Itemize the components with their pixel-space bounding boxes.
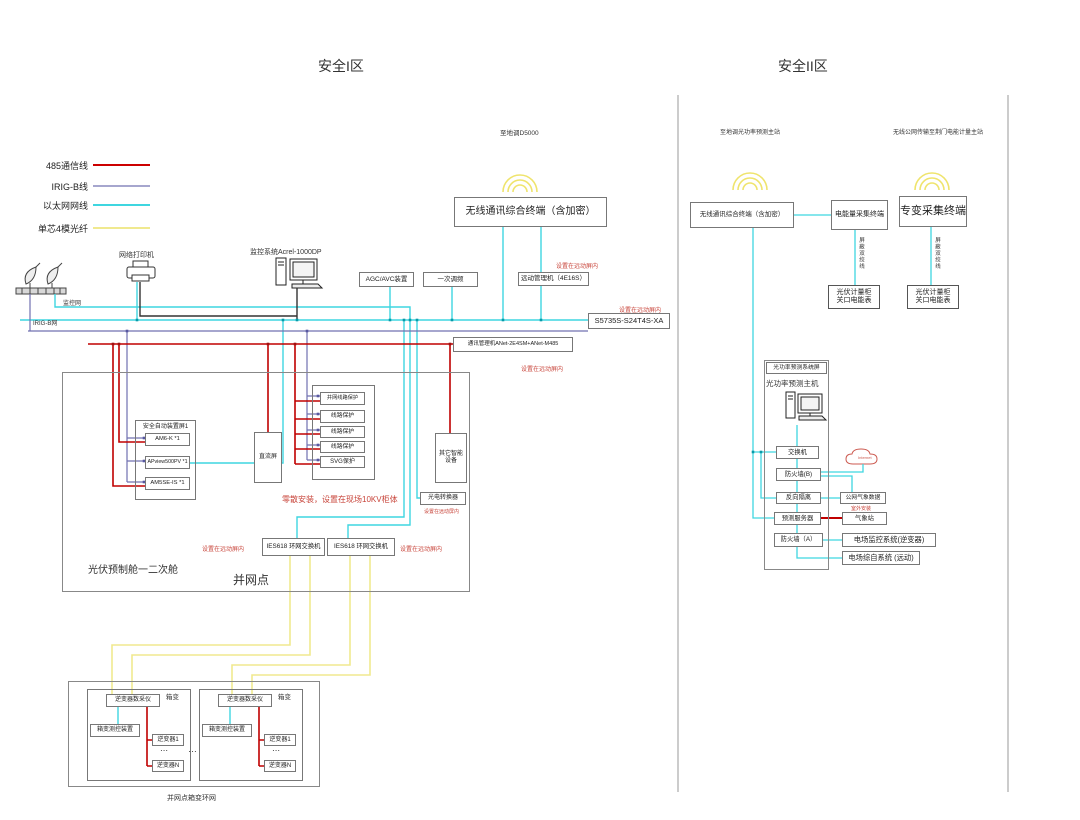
inverter-first-box-1: 逆变器1 — [152, 734, 184, 746]
transformer-controller-box-1: 箱变测控装置 — [90, 724, 140, 737]
am5se-box: AM5SE-IS *1 — [145, 477, 190, 490]
inverter-last-box-1: 逆变器N — [152, 760, 184, 772]
wifi-icon-zone1 — [503, 175, 537, 192]
protection-box-3: 线路保护 — [320, 426, 365, 438]
wifi-icon-zone2-right — [915, 173, 949, 190]
note-remote-2: 设置在远动屏内 — [619, 305, 661, 314]
svg-protection-box: SVG保护 — [320, 456, 365, 468]
prediction-host-label: 光功率预测主机 — [766, 378, 819, 389]
photo-converter-box: 光电转换器 — [420, 492, 466, 505]
zone1-title: 安全I区 — [318, 56, 364, 76]
protection-box-1: 并网线路保护 — [320, 392, 365, 405]
irig-net-label: IRIG-B网 — [33, 318, 57, 327]
protection-box-4: 线路保护 — [320, 441, 365, 453]
scada-label: 监控系统Acrel-1000DP — [250, 247, 322, 257]
dispatch-label: 至地调D5000 — [500, 127, 539, 137]
legend-label-irigb: IRIG-B线 — [8, 180, 88, 193]
core-switch-box: S5735S-S24T4S-XA — [588, 313, 670, 329]
reverse-isolation-box: 反向隔离 — [776, 492, 821, 504]
inverter-first-box-2: 逆变器1 — [264, 734, 296, 746]
twisted-pair-label-2: 屏蔽双绞线 — [933, 237, 941, 270]
agc-avc-box: AGC/AVC装置 — [359, 272, 414, 287]
monitor-net-label: 监控网 — [63, 298, 81, 307]
satellite-antenna-icon — [16, 263, 66, 294]
comm-manager-box: 通讯管理机ANet-2E4SM+ANet-M485 — [453, 337, 573, 352]
note-remote-3: 设置在远动屏内 — [521, 364, 563, 373]
internet-label: Internet — [858, 455, 872, 460]
outdoor-note: 室外安装 — [851, 505, 871, 512]
transformer-label-2: 箱变 — [278, 691, 291, 701]
wireless-terminal-zone2: 无线通讯综合终端（含加密） — [690, 202, 794, 228]
diagram-page: 安全I区 安全II区 485通信线 IRIG-B线 以太网网线 单芯4模光纤 至… — [0, 0, 1080, 820]
meter-cabinet-box-2: 光伏计量柜 关口电能表 — [907, 285, 959, 309]
transformer-label-1: 箱变 — [166, 691, 179, 701]
meter-cabinet-2-line2: 关口电能表 — [916, 297, 951, 305]
zone2-right-top-label: 无线公网传输至荆门电能计量主站 — [893, 127, 983, 136]
apview-box: APview500PV *1 — [145, 456, 190, 469]
twisted-pair-label-1: 屏蔽双绞线 — [857, 237, 865, 270]
legend-label-ethernet: 以太网网线 — [8, 199, 88, 212]
protection-box-2: 线路保护 — [320, 410, 365, 423]
scatter-note: 零散安装，设置在现场10KV柜体 — [282, 494, 398, 505]
inverter-dots-1: ⋯ — [160, 746, 168, 755]
am6k-box: AM6-K *1 — [145, 433, 190, 446]
inverter-daq-box-2: 逆变器数采仪 — [218, 694, 272, 707]
primary-freq-box: 一次调频 — [423, 272, 478, 287]
transformer-ring-label: 并网点箱变环网 — [167, 793, 216, 803]
cabin-label: 光伏预制舱一二次舱 — [88, 561, 178, 576]
meter-cabinet-1-line2: 关口电能表 — [837, 297, 872, 305]
prediction-server-box: 预测服务器 — [774, 512, 821, 525]
meter-cabinet-1-line1: 光伏计量柜 — [837, 289, 872, 297]
zone2-title: 安全II区 — [778, 56, 828, 76]
field-monitor-box: 电场监控系统(逆变器) — [842, 533, 936, 547]
scada-computer-icon — [276, 258, 322, 288]
prediction-panel-label: 光功率预测系统屏 — [766, 362, 827, 374]
wireless-terminal-zone1: 无线通讯综合终端（含加密） — [454, 197, 607, 227]
field-integrated-box: 电场综自系统 (远动) — [842, 551, 920, 565]
weather-station-box: 气象站 — [842, 512, 887, 525]
grid-point-label: 并网点 — [233, 571, 269, 588]
legend-lines — [93, 165, 150, 228]
wifi-icon-zone2-left — [733, 173, 767, 190]
legend-label-fiber: 单芯4模光纤 — [8, 222, 88, 235]
firewall-a-box: 防火墙（A） — [774, 533, 823, 547]
note-remote-5: 设置在远动屏内 — [202, 544, 244, 553]
energy-terminal-box: 电能量采集终端 — [831, 200, 888, 230]
weather-data-box: 公网气象数据 — [840, 492, 886, 504]
printer-cable — [140, 282, 297, 320]
meter-cabinet-box-1: 光伏计量柜 关口电能表 — [828, 285, 880, 309]
inverter-last-box-2: 逆变器N — [264, 760, 296, 772]
other-devices-box: 其它智能设备 — [435, 433, 467, 483]
printer-label: 网络打印机 — [119, 250, 154, 260]
ring-switch-box-1: IES618 环网交换机 — [262, 538, 325, 556]
firewall-b-box: 防火墙(B) — [776, 468, 821, 481]
transformer-controller-box-2: 箱变测控装置 — [202, 724, 252, 737]
zone2-left-top-label: 至地调光功率预测主站 — [720, 127, 780, 136]
transformer-terminal-box: 专变采集终端 — [899, 196, 967, 227]
printer-icon — [127, 261, 155, 281]
inverter-daq-box-1: 逆变器数采仪 — [106, 694, 160, 707]
ring-switch-box-2: IES618 环网交换机 — [327, 538, 395, 556]
inverter-dots-2: ⋯ — [272, 746, 280, 755]
legend-label-485: 485通信线 — [8, 159, 88, 172]
meter-cabinet-2-line1: 光伏计量柜 — [916, 289, 951, 297]
note-remote-1: 设置在远动屏内 — [556, 261, 598, 270]
note-remote-6: 设置在远动屏内 — [400, 544, 442, 553]
dc-panel-box: 直流屏 — [254, 432, 282, 483]
switch-box: 交换机 — [776, 446, 819, 459]
between-transformers-dots: … — [188, 744, 197, 754]
rtu-box: 远动管理机（4E16S） — [518, 272, 589, 286]
note-remote-4: 设置在远动屏内 — [424, 508, 459, 515]
